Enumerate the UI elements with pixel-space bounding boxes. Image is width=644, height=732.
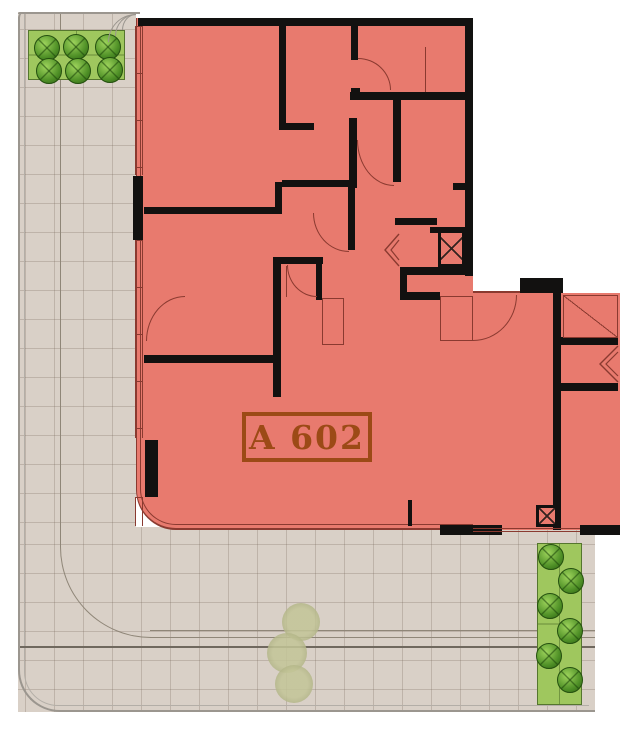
tree-icon [97,57,123,83]
walkway-line [60,14,61,547]
walkway-line [20,646,595,648]
closet-outline [322,298,344,345]
unit-label[interactable]: A 602 [242,412,372,462]
tree-icon [537,593,563,619]
walkway-line [150,630,595,631]
wall [351,24,358,60]
wall [408,500,412,526]
wall [279,24,286,130]
window [135,497,143,526]
sliding-door-line [473,528,580,532]
wall [348,187,355,250]
wall [561,337,618,345]
tree-icon [63,34,89,60]
wall [465,18,473,276]
wall [133,176,143,240]
wall [350,92,472,100]
closet-outline [440,296,473,341]
tree-icon [36,58,62,84]
window [135,26,143,175]
wall [400,292,440,300]
wall [349,118,357,188]
wall [275,182,282,214]
closet-outline [563,295,618,338]
plot-boundary-top [18,12,140,14]
folding-door-icon [598,345,619,383]
wall [279,123,314,130]
bush-icon [275,665,313,703]
shaft-box [536,505,558,527]
wall [282,180,355,187]
floorplan-canvas: A 602 [0,0,644,732]
window [135,240,143,438]
wall [561,383,618,391]
wall [144,355,281,363]
tree-icon [538,544,564,570]
tree-icon [536,643,562,669]
wall [144,207,275,214]
partition-line [473,291,520,293]
folding-door-icon [383,233,400,267]
wall [453,183,472,190]
wall [138,18,472,26]
wall [145,440,158,497]
wall [553,286,561,530]
wall [273,257,281,397]
walkway-line [150,637,595,638]
shaft-box [438,230,465,267]
tree-icon [557,667,583,693]
tree-icon [65,58,91,84]
wall [393,97,401,182]
tree-icon [557,618,583,644]
partition-line [425,47,426,92]
wall [395,218,437,225]
wall [580,525,620,535]
wall [400,267,473,275]
tree-icon [558,568,584,594]
